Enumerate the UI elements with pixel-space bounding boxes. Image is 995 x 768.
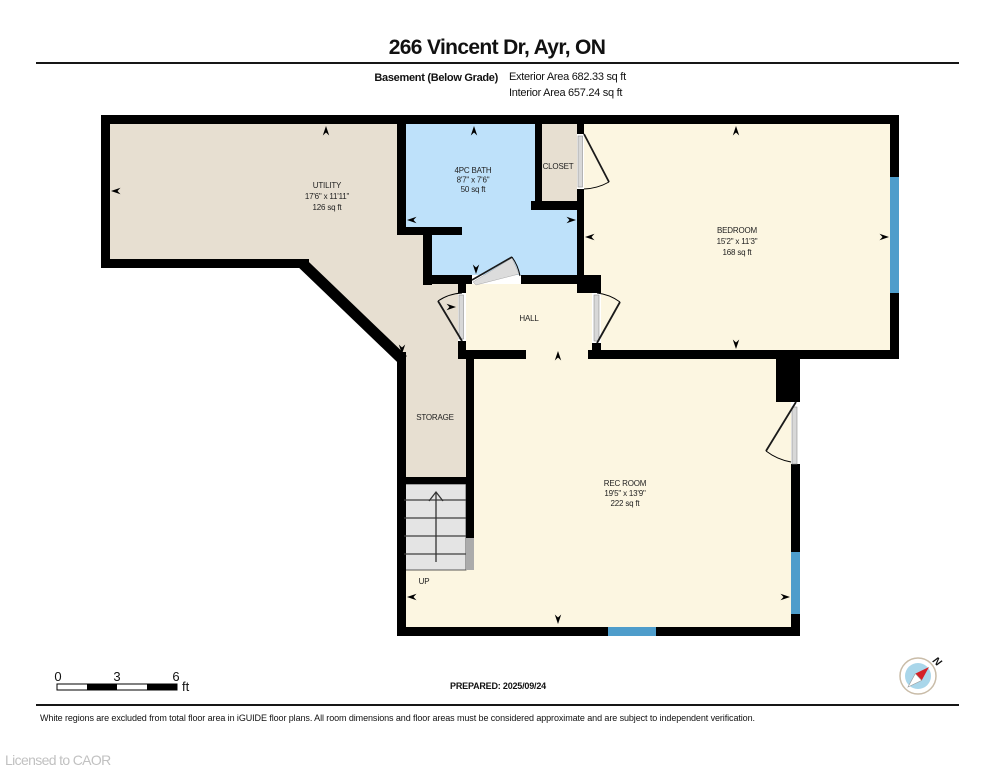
svg-text:REC ROOM: REC ROOM [604, 479, 647, 488]
svg-text:8'7" x 7'6": 8'7" x 7'6" [457, 176, 490, 185]
svg-text:Basement (Below Grade): Basement (Below Grade) [374, 72, 498, 84]
svg-text:266 Vincent Dr, Ayr, ON: 266 Vincent Dr, Ayr, ON [389, 36, 606, 59]
svg-text:STORAGE: STORAGE [416, 413, 454, 422]
svg-text:Interior Area 657.24 sq ft: Interior Area 657.24 sq ft [509, 87, 622, 99]
svg-text:PREPARED: 2025/09/24: PREPARED: 2025/09/24 [450, 681, 546, 691]
svg-text:HALL: HALL [519, 314, 539, 323]
svg-text:Licensed to CAOR: Licensed to CAOR [5, 752, 111, 768]
svg-text:UP: UP [419, 577, 430, 586]
svg-text:17'6" x 11'11": 17'6" x 11'11" [305, 192, 350, 201]
svg-text:50 sq ft: 50 sq ft [461, 185, 487, 194]
svg-text:19'5" x 13'9": 19'5" x 13'9" [604, 489, 646, 498]
svg-text:CLOSET: CLOSET [543, 162, 574, 171]
svg-text:White regions are excluded fro: White regions are excluded from total fl… [40, 713, 755, 723]
svg-text:UTILITY: UTILITY [313, 181, 342, 190]
svg-text:168 sq ft: 168 sq ft [723, 248, 753, 257]
svg-text:BEDROOM: BEDROOM [717, 226, 757, 235]
svg-text:222 sq ft: 222 sq ft [611, 499, 641, 508]
svg-text:126 sq ft: 126 sq ft [313, 203, 343, 212]
svg-text:3: 3 [113, 669, 120, 684]
svg-text:4PC BATH: 4PC BATH [455, 166, 492, 175]
svg-text:15'2" x 11'3": 15'2" x 11'3" [717, 237, 758, 246]
svg-text:ft: ft [182, 679, 190, 694]
svg-text:6: 6 [172, 669, 179, 684]
svg-text:0: 0 [54, 669, 61, 684]
svg-text:Exterior Area 682.33 sq ft: Exterior Area 682.33 sq ft [509, 71, 626, 83]
